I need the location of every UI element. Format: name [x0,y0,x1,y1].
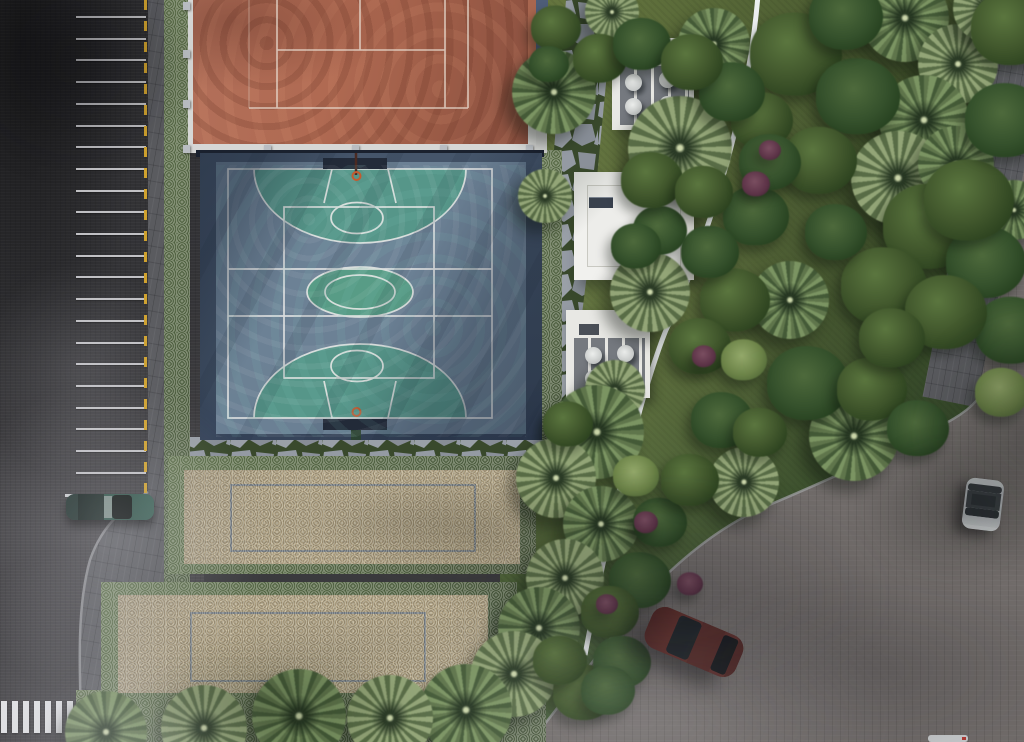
pergola-roof [571,315,645,338]
court-texture [216,165,526,437]
crosswalk-bar [56,701,62,733]
round-table [659,96,676,113]
parking-stripe [76,190,146,192]
car-silver [961,477,1005,532]
crosswalk-bar [23,701,29,733]
roof-shadow [574,172,694,280]
pergola-roof [617,43,689,66]
parking-stripe [76,125,146,127]
parking-stripe [76,81,146,83]
round-table [625,98,642,115]
sand-court-1 [168,456,536,574]
crosswalk-bar [1,701,7,733]
sand-surface [118,595,488,693]
parking-stripe [76,407,146,409]
parking-stripe [76,103,146,105]
round-table [617,369,634,386]
fence-post [183,145,190,153]
tennis-edge-stub [536,98,547,153]
pergola-deck [617,66,689,125]
parking-stripe [76,385,146,387]
parked-car-teal [66,494,154,520]
sand-court-2 [101,582,517,704]
fence-post [183,2,190,10]
parking-stripe [76,450,146,452]
parking-stripe [76,298,146,300]
crosswalk-bar [67,701,73,733]
round-table [585,370,602,387]
parking-stripe [76,363,146,365]
pergola-north [612,38,694,130]
parking-stripe [76,59,146,61]
parking-stripe [76,342,146,344]
tennis-court [188,0,536,153]
fence-post [183,100,190,108]
pergola-south [566,310,650,398]
crosswalk-bar [12,701,18,733]
flagstone-path-horizontal [168,437,566,458]
pool-house [574,172,694,280]
aerial-site-render [0,0,1024,742]
yellow-dashed-line [144,0,147,498]
parking-stripe [76,276,146,278]
sand-surface [184,470,520,564]
parking-stripe [76,255,146,257]
round-table [625,74,642,91]
round-table [617,345,634,362]
parking-stripe [76,211,146,213]
tennis-lines [188,0,536,153]
round-table [659,71,676,88]
parking-stripe [76,233,146,235]
fence-post [183,50,190,58]
tail-light [962,737,966,740]
crosswalk-bar [45,701,51,733]
volleyball-boundary [230,484,476,552]
parking-stripe [76,168,146,170]
crosswalk-bar [34,701,40,733]
parking-stripe [76,146,146,148]
court-frame-left [188,0,193,153]
tennis-edge-wall [536,0,548,98]
basketball-court [200,153,542,440]
parking-stripe [76,428,146,430]
parking-stripe [76,472,146,474]
parking-stripe [76,320,146,322]
volleyball-boundary [190,612,426,682]
parking-stripe [76,16,146,18]
parking-stripe [76,38,146,40]
pergola-deck [571,338,645,393]
round-table [585,347,602,364]
car-edge-sliver [928,735,968,742]
